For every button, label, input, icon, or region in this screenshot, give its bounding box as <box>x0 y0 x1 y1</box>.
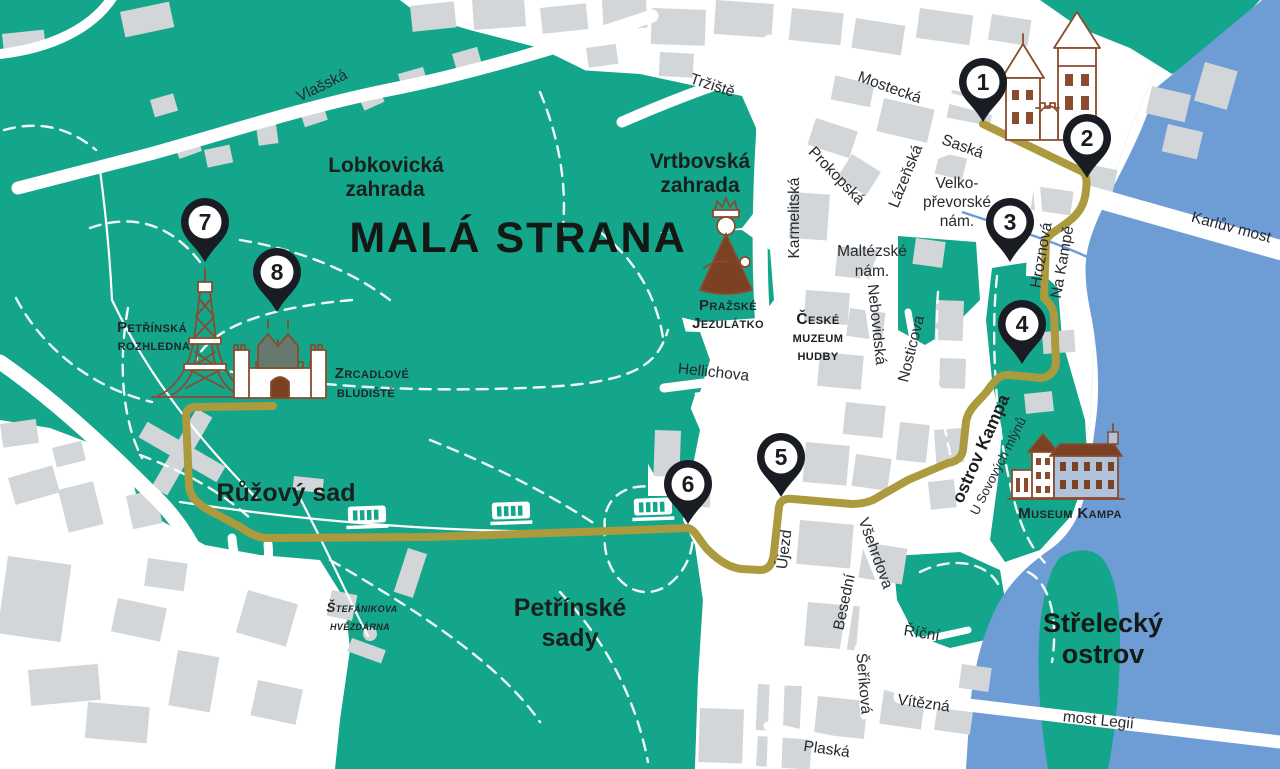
poi-label-muzeum-hudby-1: České <box>796 310 839 328</box>
route-marker-7-number: 7 <box>199 209 212 235</box>
route-marker-6-number: 6 <box>682 471 695 497</box>
route-marker-3-number: 3 <box>1004 209 1017 235</box>
landmark-label-jezulatko-2: Jezulátko <box>692 315 764 332</box>
street-label-karmelitska: Karmelitská <box>786 177 803 258</box>
landmark-label-hvezdarna-2: hvězdárna <box>330 618 390 633</box>
route-marker-2-number: 2 <box>1081 125 1094 151</box>
park-label-strelecky-1: Střelecký <box>1043 608 1163 638</box>
route-marker-4-number: 4 <box>1016 311 1029 337</box>
street-label-velkoprevorske-1: Velko- <box>935 175 978 192</box>
park-label-lobkovicka-2: zahrada <box>345 178 425 201</box>
region-label-mala-strana: MALÁ STRANA <box>349 214 686 262</box>
prague-walking-route-map: Vlašská Tržiště Mostecká Saská Lázeňská … <box>0 0 1280 769</box>
route-marker-1-number: 1 <box>977 69 990 95</box>
landmark-label-zrcadlove-2: bludiště <box>337 384 395 401</box>
landmark-label-hvezdarna-1: Štefánikova <box>326 600 397 615</box>
park-label-petrinske-sady-2: sady <box>542 624 599 652</box>
street-label-maltezske-1: Maltézské <box>837 243 907 260</box>
park-label-ruzovy-sad: Růžový sad <box>217 479 356 507</box>
street-label-maltezske-2: nám. <box>855 263 889 280</box>
route-marker-5-number: 5 <box>775 444 788 470</box>
landmark-label-museum-kampa: Museum Kampa <box>1018 505 1122 522</box>
park-label-petrinske-sady-1: Petřínské <box>514 594 627 622</box>
poi-label-muzeum-hudby-2: muzeum <box>793 329 844 346</box>
park-label-vrtbovska-1: Vrtbovská <box>650 150 751 173</box>
landmark-label-petrinska-2: rozhledna <box>118 337 191 354</box>
poi-label-muzeum-hudby-3: hudby <box>797 347 838 364</box>
landmark-label-jezulatko-1: Pražské <box>699 297 757 314</box>
street-label-velkoprevorske-3: nám. <box>940 213 974 230</box>
street-label-velkoprevorske-2: převorské <box>923 194 991 211</box>
park-label-strelecky-2: ostrov <box>1062 639 1145 669</box>
landmark-label-petrinska-1: Petřínská <box>117 319 187 336</box>
park-label-lobkovicka-1: Lobkovická <box>328 154 444 177</box>
landmark-label-zrcadlove-1: Zrcadlové <box>335 365 410 382</box>
park-label-vrtbovska-2: zahrada <box>660 174 740 197</box>
route-marker-8-number: 8 <box>271 259 284 285</box>
